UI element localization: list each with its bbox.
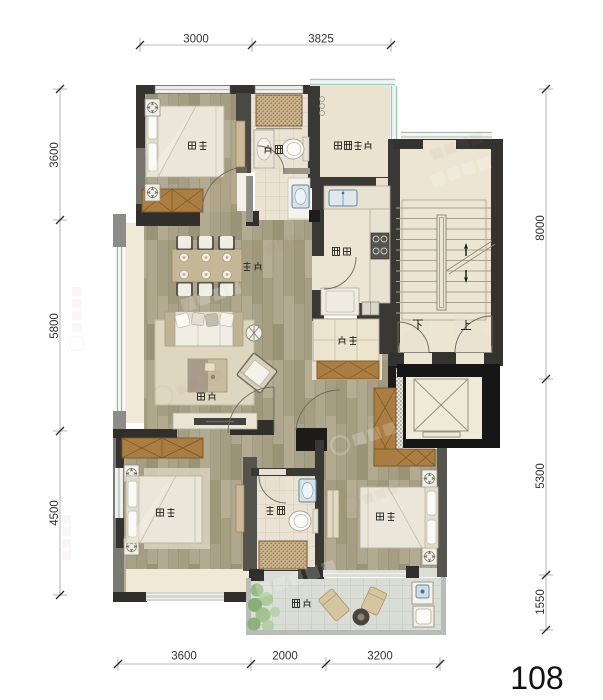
svg-text:5800: 5800	[49, 313, 61, 339]
svg-text:3600: 3600	[171, 651, 197, 663]
svg-text:5300: 5300	[535, 463, 547, 489]
svg-text:3825: 3825	[308, 34, 334, 46]
svg-text:3000: 3000	[183, 34, 209, 46]
svg-text:3600: 3600	[49, 142, 61, 168]
svg-text:4500: 4500	[49, 500, 61, 526]
svg-text:3200: 3200	[367, 651, 393, 663]
svg-text:8000: 8000	[535, 215, 547, 241]
svg-text:2000: 2000	[272, 651, 298, 663]
svg-text:1550: 1550	[535, 589, 547, 615]
svg-text:108: 108	[510, 660, 563, 696]
